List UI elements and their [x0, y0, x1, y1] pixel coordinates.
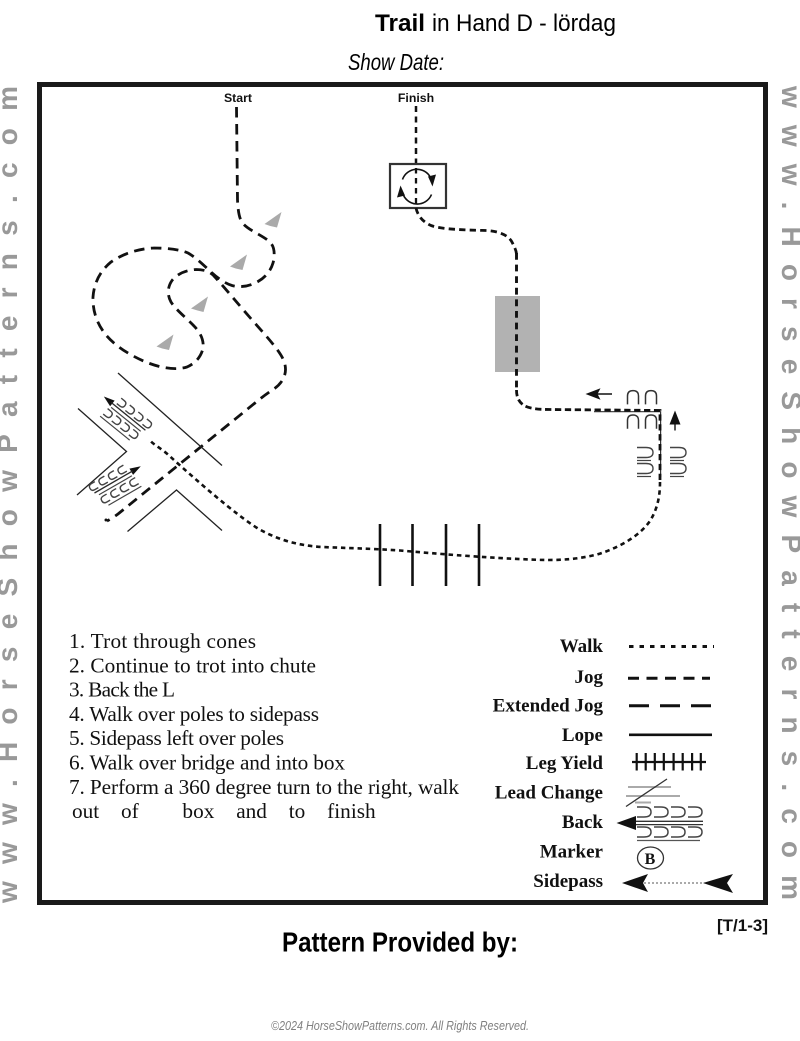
svg-text:6. Walk over bridge and into b: 6. Walk over bridge and into box	[69, 751, 345, 775]
svg-text:Leg Yield: Leg Yield	[526, 753, 604, 774]
svg-text:Pattern Provided by:: Pattern Provided by:	[282, 927, 518, 958]
svg-text:Jog: Jog	[575, 667, 604, 688]
svg-text:5. Sidepass left over poles: 5. Sidepass left over poles	[69, 726, 284, 750]
svg-text:Start: Start	[224, 91, 252, 105]
svg-text:Lead Change: Lead Change	[495, 783, 603, 804]
svg-text:Sidepass: Sidepass	[533, 871, 603, 892]
svg-text:out of box and to finish: out of box and to finish	[72, 799, 376, 823]
svg-text:Lope: Lope	[562, 725, 603, 746]
svg-text:7. Perform a 360 degree turn t: 7. Perform a 360 degree turn to the righ…	[69, 775, 459, 799]
svg-text:3. Back the L: 3. Back the L	[69, 678, 175, 702]
svg-text:Marker: Marker	[540, 842, 604, 863]
svg-text:Trail: Trail	[375, 10, 425, 37]
svg-text:2. Continue to trot into chute: 2. Continue to trot into chute	[69, 653, 316, 677]
svg-text:B: B	[645, 851, 656, 868]
svg-text:1. Trot through cones: 1. Trot through cones	[69, 629, 256, 653]
svg-text:Walk: Walk	[560, 636, 604, 657]
svg-text:in Hand D - lördag: in Hand D - lördag	[432, 10, 616, 37]
svg-text:[T/1-3]: [T/1-3]	[717, 916, 768, 935]
svg-text:4. Walk over poles to sidepass: 4. Walk over poles to sidepass	[69, 702, 319, 726]
svg-text:Finish: Finish	[398, 91, 434, 105]
svg-text:Extended Jog: Extended Jog	[493, 696, 604, 717]
svg-text:©2024 HorseShowPatterns.com. A: ©2024 HorseShowPatterns.com. All Rights …	[271, 1019, 529, 1033]
svg-text:Show Date:: Show Date:	[348, 49, 444, 75]
svg-text:Back: Back	[562, 812, 604, 833]
